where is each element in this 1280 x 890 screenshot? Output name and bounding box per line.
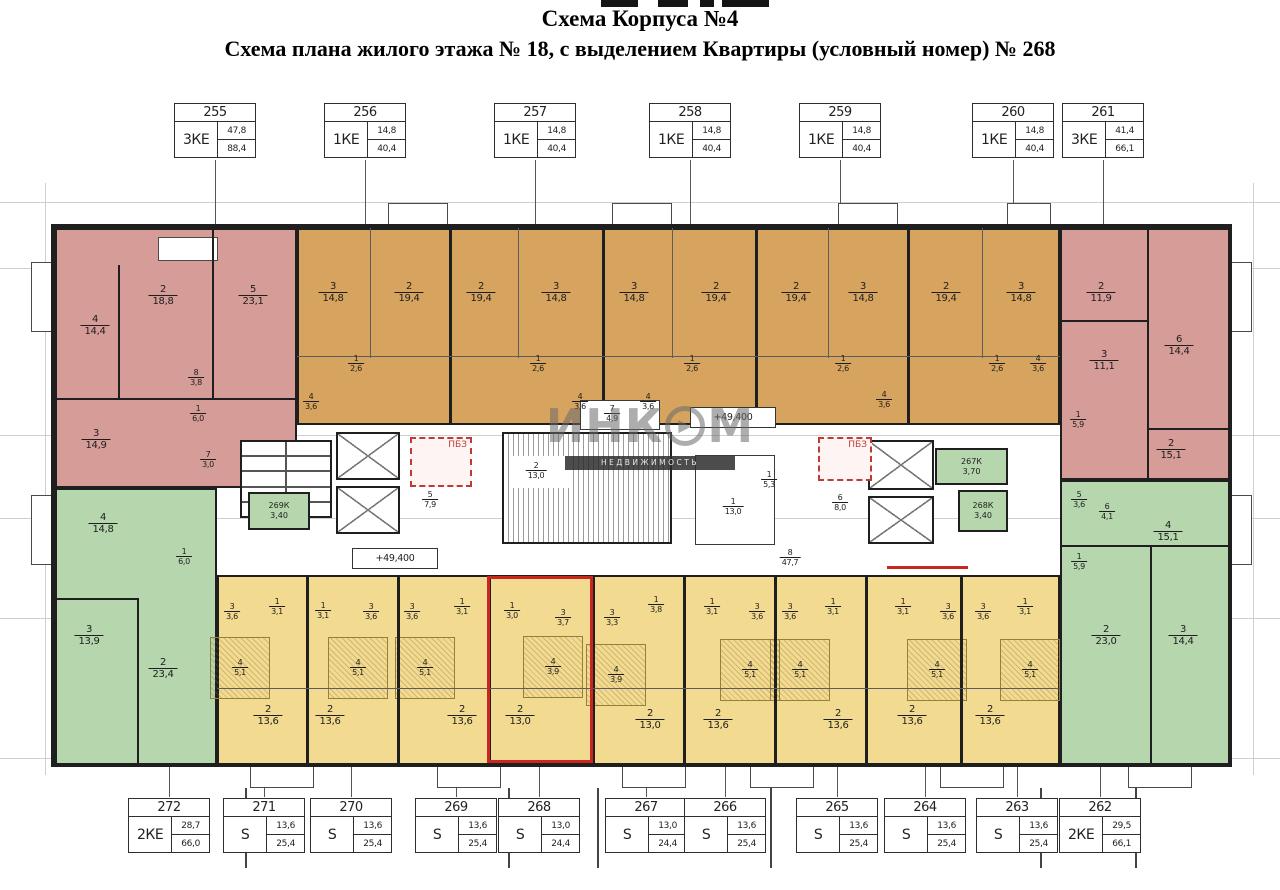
interior-wall: [865, 575, 868, 765]
room-label: 314,8: [1006, 281, 1035, 305]
room-number: 2: [897, 704, 926, 715]
room-area: 5,3: [761, 479, 777, 490]
room-label: 33,6: [782, 602, 798, 622]
room-area: 14,8: [1006, 292, 1035, 305]
tag-leader-line: [539, 766, 540, 797]
fire-safety-zone: ПБЗ: [410, 437, 472, 487]
room-area: 11,9: [1086, 292, 1115, 305]
room-number: 1: [835, 354, 851, 363]
room-number: 3: [1168, 624, 1197, 635]
interior-wall: [683, 575, 686, 765]
tag-leader-line: [535, 160, 536, 226]
room-label: 314,8: [318, 281, 347, 305]
unit-living-area: 13,6: [354, 817, 391, 835]
room-number: 2: [394, 281, 423, 292]
room-label: 213,0: [635, 708, 664, 732]
room-number: 4: [1030, 354, 1046, 363]
room-number: 1: [723, 497, 744, 506]
room-number: 4: [80, 314, 109, 325]
partition-wall: [982, 228, 983, 358]
interior-wall: [1060, 545, 1230, 547]
room-number: 6: [1164, 334, 1193, 345]
room-area: 5,1: [929, 669, 945, 680]
balcony-outline: [1229, 495, 1252, 565]
room-label: 33,6: [940, 602, 956, 622]
unit-tag-270: 270S13,625,4: [310, 798, 392, 853]
room-area: 3,1: [315, 610, 331, 621]
room-area: 13,6: [315, 715, 344, 728]
room-label: 12,6: [348, 354, 364, 374]
balcony-outline: [1128, 766, 1192, 788]
room-number: 2: [1091, 624, 1120, 635]
room-area: 3,1: [1017, 606, 1033, 617]
room-area: 14,8: [88, 523, 117, 536]
room-label: 219,4: [394, 281, 423, 305]
room-label: 213,6: [703, 708, 732, 732]
room-number: 1: [704, 597, 720, 606]
room-area: 3,6: [940, 611, 956, 622]
unit-total-area: 88,4: [218, 140, 255, 157]
partition-wall: [828, 228, 829, 358]
room-label: 314,8: [848, 281, 877, 305]
room-area: 15,1: [1153, 531, 1182, 544]
room-label: 12,6: [684, 354, 700, 374]
apartments-256-260-region: [297, 228, 1060, 425]
room-label: 12,6: [835, 354, 851, 374]
room-number: 5: [1071, 490, 1087, 499]
room-label: 219,4: [701, 281, 730, 305]
room-area: 14,9: [81, 439, 110, 452]
red-marking-segment: [887, 566, 968, 569]
room-label: 13,1: [269, 597, 285, 617]
room-label: 314,4: [1168, 624, 1197, 648]
interior-wall: [960, 575, 963, 765]
room-area: 6,0: [176, 556, 192, 567]
unit-tag-256: 2561КЕ14,840,4: [324, 103, 406, 158]
unit-tag-255: 2553КЕ47,888,4: [174, 103, 256, 158]
unit-total-area: 24,4: [542, 835, 579, 852]
unit-total-area: 40,4: [1016, 140, 1053, 157]
room-label: 211,9: [1086, 281, 1115, 305]
room-label: 45,1: [1022, 660, 1038, 680]
unit-tag-272: 2722КЕ28,766,0: [128, 798, 210, 853]
room-number: 3: [404, 602, 420, 611]
room-label: 113,0: [723, 497, 744, 517]
room-area: 3,1: [825, 606, 841, 617]
room-area: 5,1: [350, 667, 366, 678]
unit-living-area: 28,7: [172, 817, 209, 835]
room-label: 45,1: [232, 658, 248, 678]
room-label: 43,6: [1030, 354, 1046, 374]
room-number: 4: [742, 660, 758, 669]
room-label: 213,0: [526, 461, 547, 481]
room-label: 45,1: [929, 660, 945, 680]
tag-leader-line: [1017, 766, 1018, 797]
room-label: 43,6: [640, 392, 656, 412]
room-number: 1: [895, 597, 911, 606]
unit-living-area: 29,5: [1103, 817, 1140, 835]
tag-leader-line: [1103, 160, 1104, 226]
room-area: 7,9: [422, 499, 438, 510]
apartment-261-region: [1060, 228, 1230, 480]
unit-living-area: 14,8: [693, 122, 730, 140]
tag-leader-line: [365, 160, 366, 226]
room-area: 23,1: [238, 295, 267, 308]
interior-wall: [755, 228, 758, 425]
unit-number: 265: [797, 799, 877, 817]
tag-leader-line: [169, 766, 170, 797]
technical-room-area: 3,40: [974, 511, 992, 521]
partition-wall: [672, 228, 673, 358]
unit-total-area: 25,4: [354, 835, 391, 852]
room-area: 3,1: [704, 606, 720, 617]
unit-total-area: 66,0: [172, 835, 209, 852]
unit-type: 2КЕ: [1060, 817, 1103, 852]
room-number: 2: [635, 708, 664, 719]
interior-wall: [55, 598, 137, 600]
unit-type: 1КЕ: [800, 122, 843, 157]
room-area: 3,0: [200, 459, 216, 470]
room-number: 2: [1086, 281, 1115, 292]
tag-leader-line: [725, 766, 726, 797]
room-number: 7: [604, 404, 620, 413]
room-area: 5,1: [232, 667, 248, 678]
room-area: 19,4: [931, 292, 960, 305]
room-number: 4: [572, 392, 588, 401]
room-number: 3: [848, 281, 877, 292]
room-label: 13,1: [315, 601, 331, 621]
room-number: 1: [761, 470, 777, 479]
unit-total-area: 40,4: [843, 140, 880, 157]
elevation-mark: +49,400: [690, 407, 776, 428]
unit-living-area: 13,6: [267, 817, 304, 835]
room-number: 4: [417, 658, 433, 667]
unit-type: S: [606, 817, 649, 852]
room-label: 13,1: [825, 597, 841, 617]
elevator-shaft: [336, 432, 400, 480]
room-number: 2: [466, 281, 495, 292]
room-area: 3,3: [604, 617, 620, 628]
room-label: 33,3: [604, 608, 620, 628]
unit-type: S: [797, 817, 840, 852]
tag-leader-line: [690, 160, 691, 226]
room-number: 1: [825, 597, 841, 606]
room-label: 43,9: [608, 665, 624, 685]
room-label: 12,6: [530, 354, 546, 374]
room-number: 1: [190, 404, 206, 413]
room-number: 8: [780, 548, 801, 557]
balcony-outline: [622, 766, 686, 788]
unit-number: 256: [325, 104, 405, 122]
room-number: 4: [792, 660, 808, 669]
unit-type: 3КЕ: [1063, 122, 1106, 157]
room-label: 13,1: [454, 597, 470, 617]
unit-tag-261: 2613КЕ41,466,1: [1062, 103, 1144, 158]
room-label: 847,7: [780, 548, 801, 568]
unit-living-area: 13,6: [459, 817, 496, 835]
room-area: 13,6: [253, 715, 282, 728]
room-number: 1: [1070, 410, 1086, 419]
room-label: 16,0: [176, 547, 192, 567]
room-area: 14,8: [619, 292, 648, 305]
unit-tag-257: 2571КЕ14,840,4: [494, 103, 576, 158]
unit-number: 264: [885, 799, 965, 817]
elevator-shaft: [868, 496, 934, 544]
balcony-outline: [838, 203, 898, 227]
room-label: 64,1: [1099, 502, 1115, 522]
room-number: 3: [604, 608, 620, 617]
room-area: 23,4: [148, 668, 177, 681]
room-area: 23,0: [1091, 635, 1120, 648]
room-area: 2,6: [530, 363, 546, 374]
room-area: 13,6: [975, 715, 1004, 728]
unit-total-area: 66,1: [1106, 140, 1143, 157]
unit-number: 259: [800, 104, 880, 122]
tag-leader-line: [351, 766, 352, 797]
unit-type: 1КЕ: [325, 122, 368, 157]
room-area: 3,6: [303, 401, 319, 412]
room-label: 219,4: [931, 281, 960, 305]
technical-room-268К: 268К3,40: [958, 490, 1008, 532]
unit-tag-265: 265S13,625,4: [796, 798, 878, 853]
unit-type: 3КЕ: [175, 122, 218, 157]
room-label: 213,6: [897, 704, 926, 728]
room-number: 4: [1153, 520, 1182, 531]
room-label: 614,4: [1164, 334, 1193, 358]
room-number: 2: [148, 284, 177, 295]
room-area: 14,8: [541, 292, 570, 305]
interior-wall: [212, 228, 214, 400]
room-label: 213,6: [253, 704, 282, 728]
room-area: 3,8: [188, 377, 204, 388]
technical-room-area: 3,70: [963, 467, 981, 477]
room-area: 3,6: [572, 401, 588, 412]
unit-living-area: 13,6: [728, 817, 765, 835]
room-area: 3,1: [454, 606, 470, 617]
unit-living-area: 14,8: [538, 122, 575, 140]
unit-total-area: 25,4: [1020, 835, 1057, 852]
room-label: 219,4: [466, 281, 495, 305]
unit-tag-271: 271S13,625,4: [223, 798, 305, 853]
room-area: 14,8: [318, 292, 347, 305]
room-number: 2: [253, 704, 282, 715]
room-area: 5,1: [792, 669, 808, 680]
room-label: 313,9: [74, 624, 103, 648]
room-number: 4: [608, 665, 624, 674]
room-label: 223,4: [148, 657, 177, 681]
room-label: 53,6: [1071, 490, 1087, 510]
room-number: 1: [176, 547, 192, 556]
room-area: 5,1: [742, 669, 758, 680]
balcony-outline: [250, 766, 314, 788]
room-area: 4,1: [1099, 511, 1115, 522]
unit-type: S: [685, 817, 728, 852]
room-label: 15,3: [761, 470, 777, 490]
room-number: 4: [232, 658, 248, 667]
room-label: 13,8: [648, 595, 664, 615]
room-number: 3: [940, 602, 956, 611]
room-number: 5: [422, 490, 438, 499]
room-area: 19,4: [701, 292, 730, 305]
room-area: 3,6: [640, 401, 656, 412]
room-number: 4: [640, 392, 656, 401]
balcony-outline: [612, 203, 672, 227]
room-number: 1: [315, 601, 331, 610]
unit-type: S: [499, 817, 542, 852]
unit-number: 270: [311, 799, 391, 817]
interior-wall: [118, 265, 120, 400]
room-area: 13,9: [74, 635, 103, 648]
room-area: 3,6: [749, 611, 765, 622]
unit-living-area: 13,6: [840, 817, 877, 835]
page-title: Схема Корпуса №4: [0, 6, 1280, 32]
room-number: 2: [315, 704, 344, 715]
balcony-outline: [158, 237, 218, 261]
unit-living-area: 41,4: [1106, 122, 1143, 140]
room-number: 6: [832, 493, 848, 502]
room-area: 19,4: [781, 292, 810, 305]
room-area: 3,1: [895, 606, 911, 617]
room-number: 1: [684, 354, 700, 363]
room-number: 4: [876, 390, 892, 399]
unit-type: S: [224, 817, 267, 852]
room-label: 16,0: [190, 404, 206, 424]
room-number: 3: [1006, 281, 1035, 292]
room-area: 3,6: [404, 611, 420, 622]
room-number: 3: [318, 281, 347, 292]
room-area: 8,0: [832, 502, 848, 513]
unit-tag-266: 266S13,625,4: [684, 798, 766, 853]
room-number: 1: [1017, 597, 1033, 606]
partition-wall: [217, 688, 1060, 689]
room-label: 12,6: [989, 354, 1005, 374]
room-number: 2: [823, 708, 852, 719]
unit-tag-269: 269S13,625,4: [415, 798, 497, 853]
room-area: 3,6: [1071, 499, 1087, 510]
elevator-shaft: [336, 486, 400, 534]
room-label: 223,0: [1091, 624, 1120, 648]
room-label: 83,8: [188, 368, 204, 388]
unit-living-area: 13,0: [542, 817, 579, 835]
unit-tag-258: 2581КЕ14,840,4: [649, 103, 731, 158]
room-area: 14,8: [848, 292, 877, 305]
room-area: 5,9: [1070, 419, 1086, 430]
room-label: 33,6: [404, 602, 420, 622]
room-number: 2: [148, 657, 177, 668]
unit-living-area: 13,0: [649, 817, 686, 835]
unit-number: 268: [499, 799, 579, 817]
room-area: 3,1: [269, 606, 285, 617]
interior-wall: [1060, 320, 1147, 322]
room-area: 11,1: [1089, 360, 1118, 373]
interior-wall: [602, 228, 605, 425]
room-number: 5: [238, 284, 267, 295]
room-area: 3,6: [363, 611, 379, 622]
room-number: 4: [303, 392, 319, 401]
unit-type: S: [885, 817, 928, 852]
tag-leader-line: [837, 766, 838, 797]
floor-plan-page: Схема Корпуса №4 Схема плана жилого этаж…: [0, 0, 1280, 890]
unit-total-area: 40,4: [538, 140, 575, 157]
balcony-outline: [1007, 203, 1051, 227]
room-label: 45,1: [792, 660, 808, 680]
room-label: 414,4: [80, 314, 109, 338]
interior-wall: [55, 398, 297, 400]
room-area: 18,8: [148, 295, 177, 308]
highlight-apartment-268: [487, 576, 593, 763]
unit-total-area: 66,1: [1103, 835, 1140, 852]
partition-wall: [370, 228, 371, 358]
partition-wall: [297, 356, 1060, 357]
interior-wall: [907, 228, 910, 425]
unit-total-area: 25,4: [840, 835, 877, 852]
unit-tag-267: 267S13,024,4: [605, 798, 687, 853]
tag-divider-bar: [597, 788, 599, 868]
room-label: 13,1: [895, 597, 911, 617]
unit-total-area: 25,4: [728, 835, 765, 852]
room-label: 73,0: [200, 450, 216, 470]
technical-room-label: 268К: [973, 501, 994, 511]
room-area: 14,4: [80, 325, 109, 338]
room-number: 3: [81, 428, 110, 439]
balcony-outline: [388, 203, 448, 227]
room-label: 314,9: [81, 428, 110, 452]
unit-number: 260: [973, 104, 1053, 122]
room-area: 6,0: [190, 413, 206, 424]
room-label: 33,6: [363, 602, 379, 622]
room-label: 213,6: [315, 704, 344, 728]
room-number: 3: [363, 602, 379, 611]
balcony-outline: [437, 766, 501, 788]
room-label: 314,8: [541, 281, 570, 305]
interior-wall: [1147, 428, 1230, 430]
tag-leader-line: [925, 766, 926, 797]
room-area: 5,1: [417, 667, 433, 678]
room-area: 5,1: [1022, 669, 1038, 680]
unit-number: 267: [606, 799, 686, 817]
stairwell: [502, 432, 672, 544]
room-area: 4,9: [604, 413, 620, 424]
elevator-shaft: [868, 440, 934, 490]
room-number: 4: [88, 512, 117, 523]
room-label: 33,6: [975, 602, 991, 622]
room-number: 4: [929, 660, 945, 669]
room-number: 3: [975, 602, 991, 611]
room-number: 3: [1089, 349, 1118, 360]
interior-wall: [397, 575, 400, 765]
room-label: 523,1: [238, 284, 267, 308]
room-area: 13,0: [635, 719, 664, 732]
room-number: 2: [781, 281, 810, 292]
unit-tag-260: 2601КЕ14,840,4: [972, 103, 1054, 158]
room-number: 2: [526, 461, 547, 470]
room-label: 218,8: [148, 284, 177, 308]
room-area: 15,1: [1156, 449, 1185, 462]
room-number: 2: [447, 704, 476, 715]
room-label: 213,6: [823, 708, 852, 732]
unit-type: 1КЕ: [650, 122, 693, 157]
room-area: 13,6: [703, 719, 732, 732]
room-label: 68,0: [832, 493, 848, 513]
interior-wall: [137, 598, 139, 765]
room-label: 219,4: [781, 281, 810, 305]
tag-divider-bar: [770, 788, 772, 868]
room-label: 45,1: [350, 658, 366, 678]
room-label: 45,1: [742, 660, 758, 680]
technical-room-area: 3,40: [270, 511, 288, 521]
technical-room-269К: 269К3,40: [248, 492, 310, 530]
room-area: 2,6: [348, 363, 364, 374]
